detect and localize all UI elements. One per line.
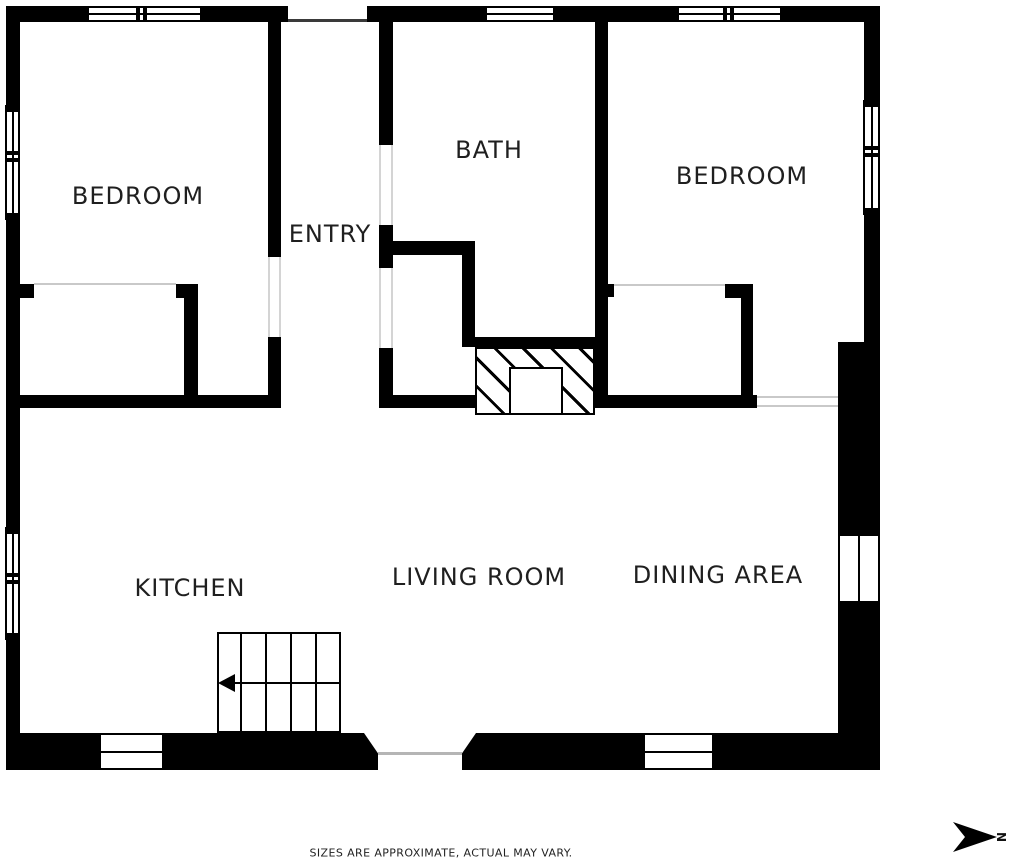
window-pane-line xyxy=(871,102,873,213)
staircase xyxy=(217,632,341,733)
wall-top-segment xyxy=(367,6,480,22)
window-mullion xyxy=(723,8,727,20)
window-frame-cap xyxy=(865,208,878,213)
closet-right-opening xyxy=(614,284,725,286)
room-label-kitchen: KITCHEN xyxy=(135,574,246,602)
window-bedroom-right-top xyxy=(672,6,787,22)
wall-bottom-segment xyxy=(6,733,93,770)
window-frame-cap xyxy=(84,8,89,20)
wall-left-segment xyxy=(6,220,20,527)
closet-left-wall xyxy=(184,284,198,403)
size-disclaimer: SIZES ARE APPROXIMATE, ACTUAL MAY VARY. xyxy=(310,847,573,860)
window-frame-cap xyxy=(840,529,878,536)
window-frame-cap xyxy=(639,735,645,768)
front-door-opening xyxy=(288,19,367,22)
window-frame-cap xyxy=(482,8,487,20)
door-opening-hall-closet xyxy=(379,268,381,348)
window-frame-cap xyxy=(780,8,785,20)
wall-right-segment xyxy=(864,6,880,100)
closet-right-wall-stub xyxy=(595,284,614,297)
window-mullion xyxy=(865,146,878,150)
wall-bedroom-right-bottom xyxy=(595,395,757,408)
room-label-bedroom-right: BEDROOM xyxy=(676,162,808,190)
window-pane-line xyxy=(95,751,168,753)
main-door-threshold xyxy=(378,752,462,755)
window-pane-line xyxy=(639,751,718,753)
window-frame-cap xyxy=(553,8,558,20)
wall-bottom-segment xyxy=(476,733,637,770)
wall-bedroom-left-bottom xyxy=(20,395,278,408)
room-label-entry: ENTRY xyxy=(289,220,372,248)
door-opening-hall-closet xyxy=(391,268,393,348)
door-opening-bedroom-left xyxy=(268,257,270,337)
window-bath-top xyxy=(480,6,560,22)
window-dining-bottom xyxy=(637,733,720,770)
window-frame-cap xyxy=(712,735,718,768)
window-frame-cap xyxy=(7,633,18,638)
wall-bottom-segment xyxy=(170,733,364,770)
door-opening-bath xyxy=(379,145,381,225)
window-frame-cap xyxy=(840,601,878,608)
wall-fireplace-top xyxy=(475,337,608,347)
wall-bath-inner-h xyxy=(379,241,475,255)
window-mullion xyxy=(865,153,878,157)
fireplace-firebox xyxy=(509,367,563,415)
wall-left-segment xyxy=(6,6,20,105)
wall-bath-inner-v xyxy=(462,241,475,347)
window-frame-cap xyxy=(162,735,168,768)
window-frame-cap xyxy=(674,8,679,20)
wall-right-thick-segment xyxy=(838,342,880,527)
window-bedroom-left-top xyxy=(82,6,207,22)
floor-plan: BEDROOM ENTRY BATH BEDROOM KITCHEN LIVIN… xyxy=(0,0,1018,864)
room-label-bedroom-left: BEDROOM xyxy=(72,182,204,210)
window-pane-line xyxy=(482,13,558,15)
wall-hall-closet-bottom xyxy=(379,395,475,408)
window-kitchen-bottom xyxy=(93,733,170,770)
window-mullion xyxy=(7,573,18,577)
wall-entry-west xyxy=(268,22,281,257)
wall-top-segment xyxy=(560,6,672,22)
window-mullion xyxy=(7,151,18,155)
door-opening-bedroom-right xyxy=(757,405,838,407)
north-letter: N xyxy=(994,832,1008,842)
window-frame-cap xyxy=(865,102,878,107)
door-opening-bedroom-right xyxy=(757,396,838,398)
wall-top-segment xyxy=(207,6,288,22)
room-label-bath: BATH xyxy=(455,136,523,164)
door-opening-bath xyxy=(391,145,393,225)
room-label-dining-area: DINING AREA xyxy=(633,561,803,589)
window-mullion xyxy=(136,8,140,20)
wall-bath-east xyxy=(595,22,608,408)
window-frame-cap xyxy=(7,107,18,112)
window-frame-cap xyxy=(7,213,18,218)
window-pane-line xyxy=(858,529,860,608)
window-frame-cap xyxy=(7,529,18,534)
window-dining-side xyxy=(838,527,880,610)
window-mullion xyxy=(730,8,734,20)
closet-right-wall xyxy=(741,284,753,395)
window-kitchen-side xyxy=(5,527,20,640)
stair-direction-arrow-icon xyxy=(218,674,235,692)
closet-left-wall-stub xyxy=(20,284,34,298)
window-mullion xyxy=(7,158,18,162)
stair-direction-line xyxy=(234,682,341,684)
window-mullion xyxy=(143,8,147,20)
room-label-living-room: LIVING ROOM xyxy=(392,563,566,591)
window-frame-cap xyxy=(200,8,205,20)
wall-right-segment xyxy=(864,215,880,342)
main-door-jamb-right xyxy=(462,733,476,770)
window-mullion xyxy=(7,580,18,584)
window-bedroom-right-side xyxy=(863,100,880,215)
wall-bath-west xyxy=(379,22,393,145)
window-bedroom-left-side xyxy=(5,105,20,220)
wall-bottom-segment xyxy=(720,733,880,770)
window-pane-line xyxy=(12,107,14,218)
closet-left-opening xyxy=(34,283,176,285)
door-opening-bedroom-left xyxy=(279,257,281,337)
window-frame-cap xyxy=(95,735,101,768)
main-door-jamb-left xyxy=(364,733,378,770)
